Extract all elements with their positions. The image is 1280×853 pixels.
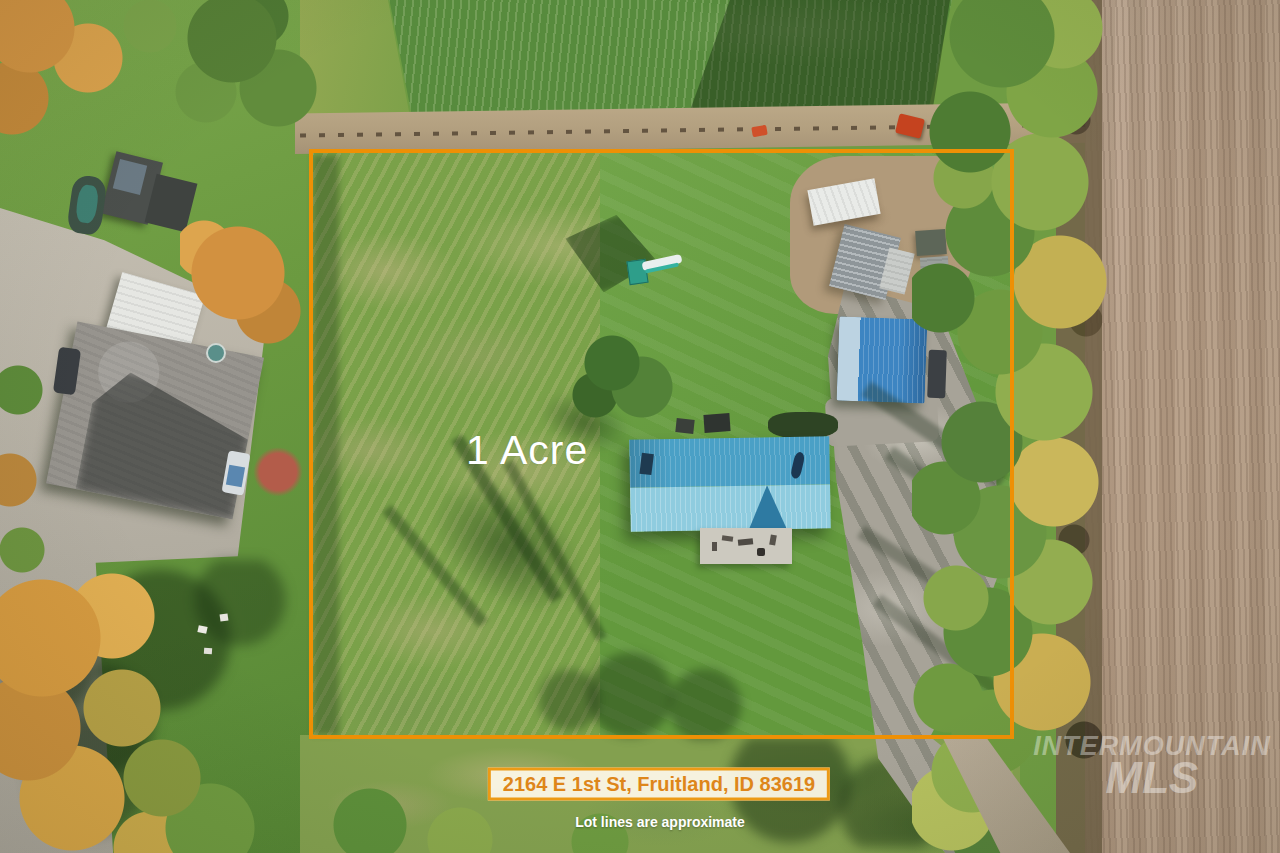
rv-tarp bbox=[226, 465, 245, 487]
left-small-trees bbox=[0, 360, 60, 580]
acre-label: 1 Acre bbox=[466, 428, 588, 473]
crop-field-shadow bbox=[688, 0, 950, 116]
red-tree bbox=[252, 444, 304, 502]
address-banner: 2164 E 1st St, Fruitland, ID 83619 bbox=[488, 768, 830, 801]
plowed-field bbox=[1085, 0, 1280, 853]
pool-round bbox=[206, 343, 226, 363]
autumn-tree-midleft bbox=[180, 215, 310, 345]
aerial-photo: 1 Acre 2164 E 1st St, Fruitland, ID 8361… bbox=[0, 0, 1280, 853]
top-left-trees bbox=[0, 0, 320, 200]
bottom-left-trees bbox=[0, 560, 330, 853]
boundary-line bbox=[309, 149, 1014, 739]
disclaimer-label: Lot lines are approximate bbox=[575, 814, 745, 830]
